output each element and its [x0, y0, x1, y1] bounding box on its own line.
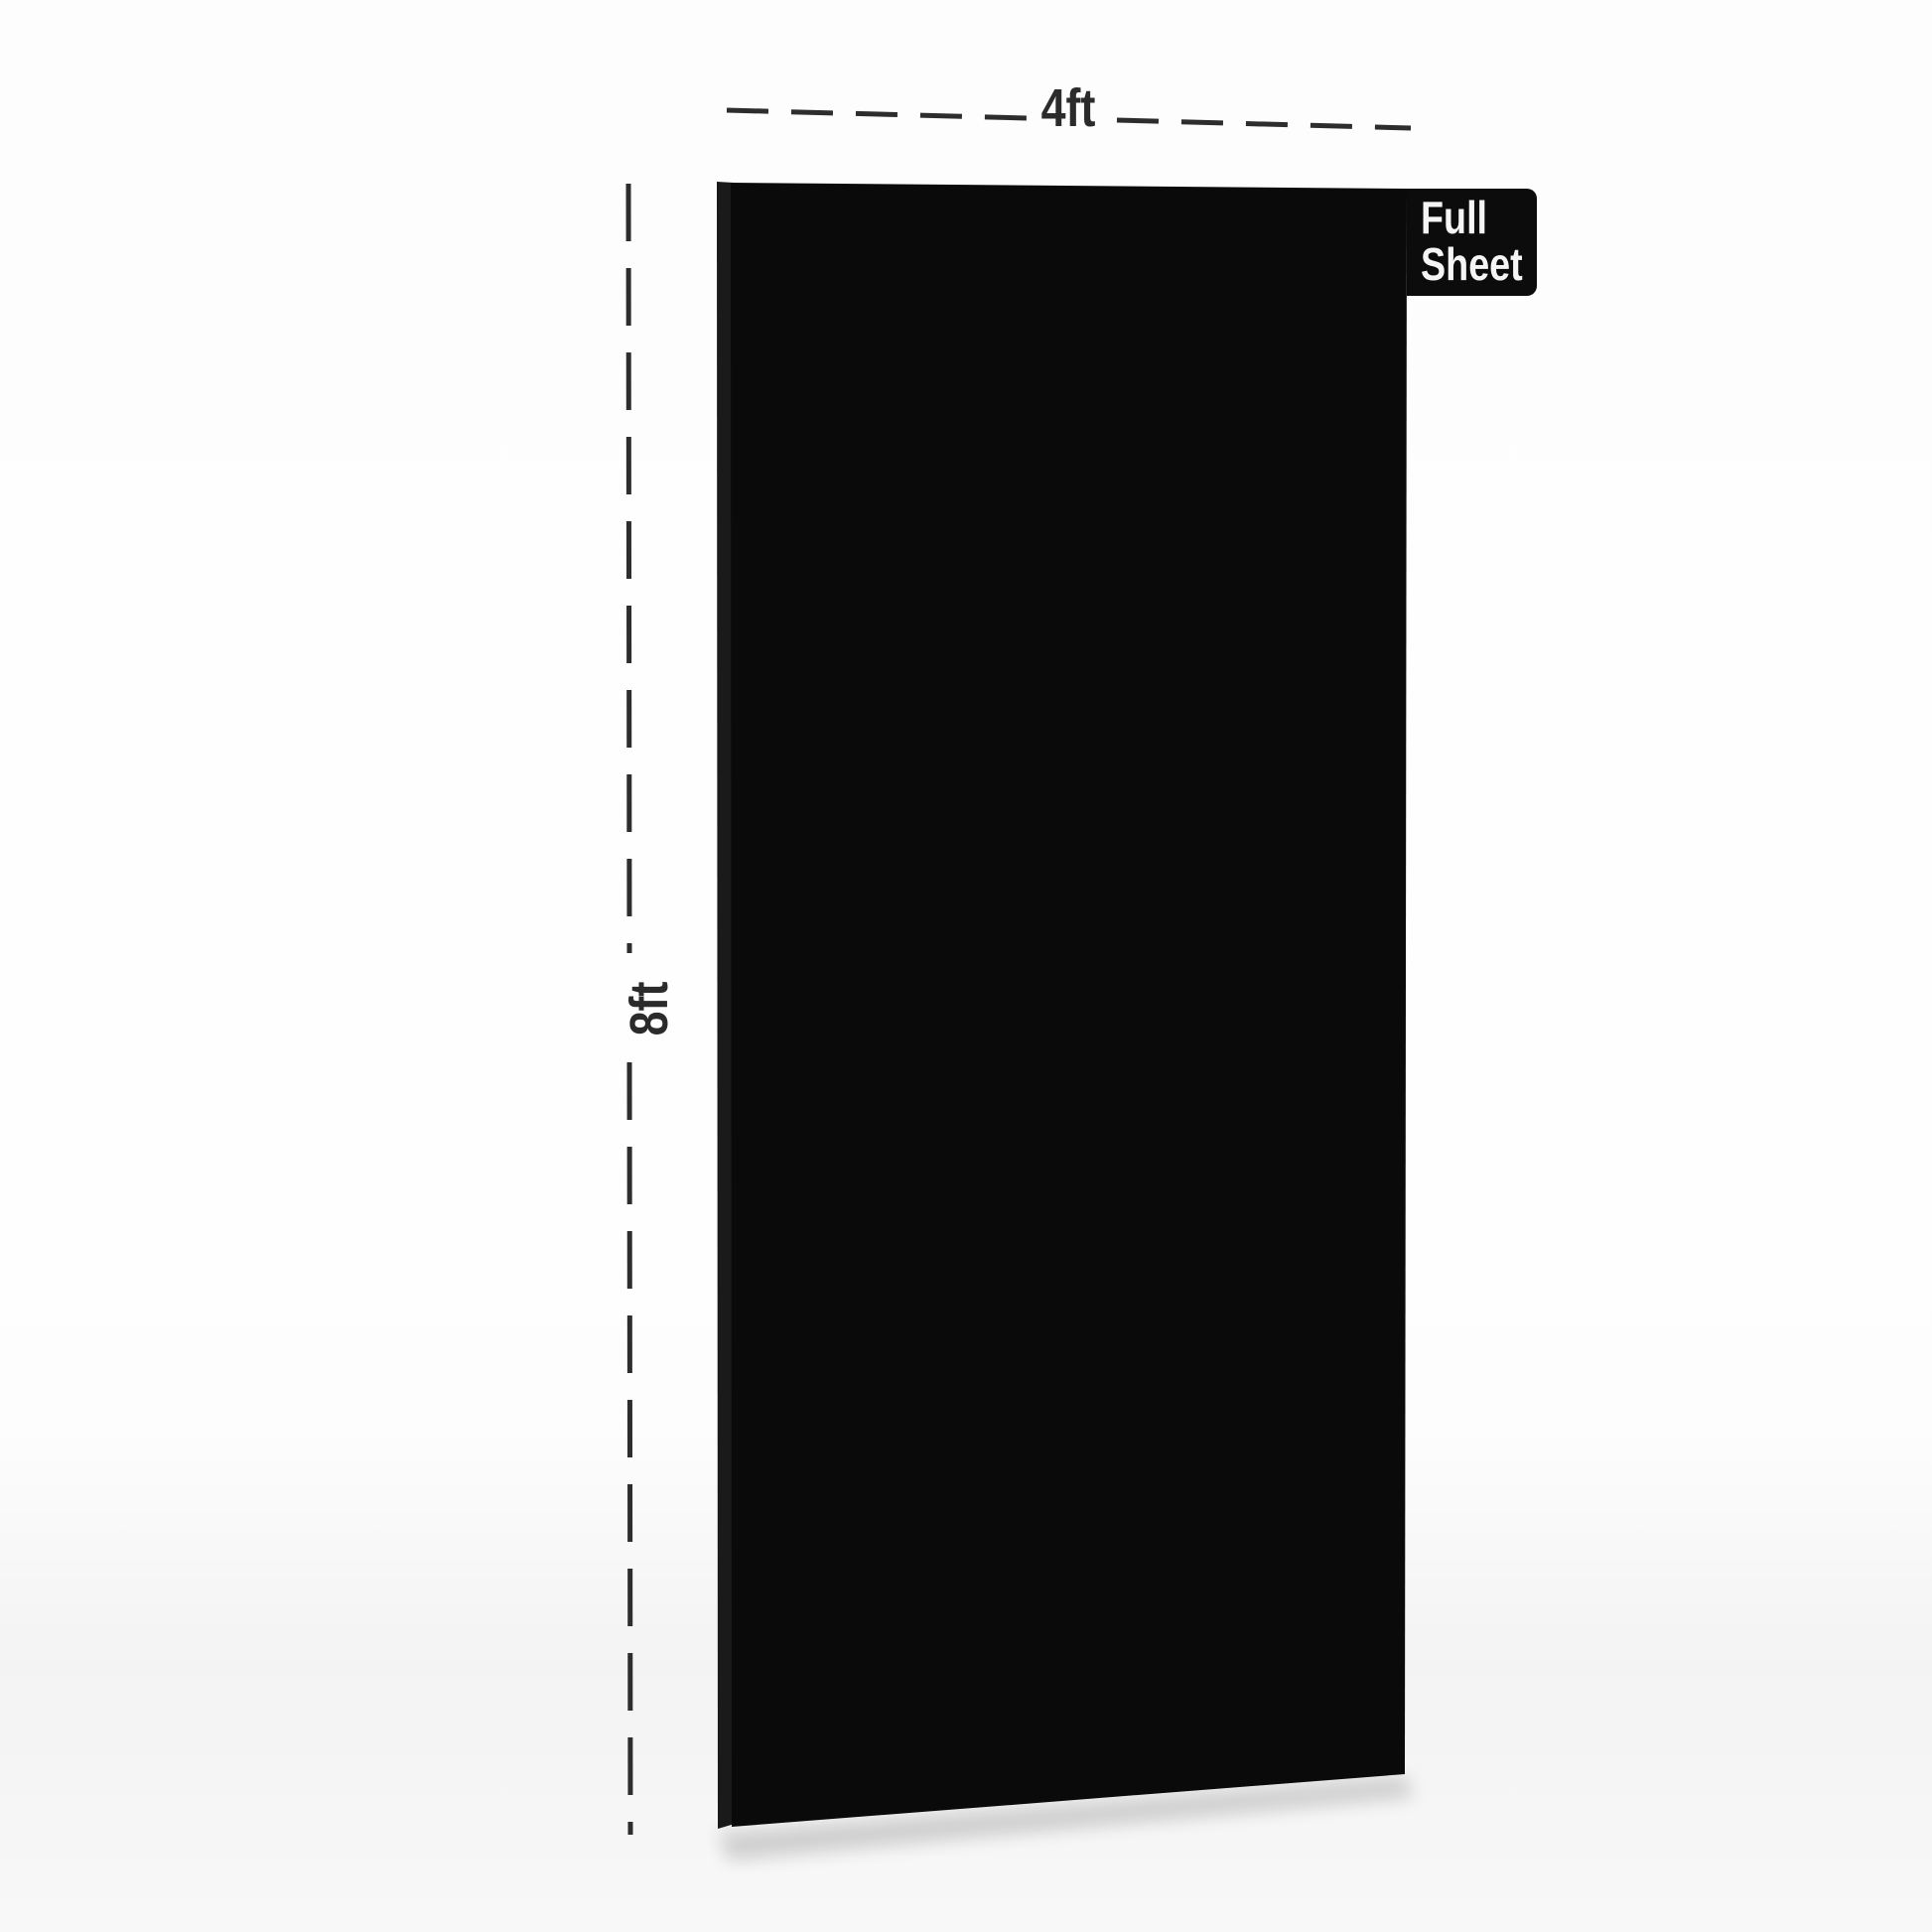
height-dimension-label: 8ft: [619, 982, 680, 1036]
height-dimension-line-bottom: [629, 1062, 630, 1835]
sheet-scene: [0, 0, 1932, 1932]
product-dimension-diagram: 4ft 8ft Full Sheet: [0, 0, 1932, 1932]
full-sheet-badge-line1: Full: [1421, 195, 1516, 241]
width-dimension-label: 4ft: [1041, 77, 1096, 139]
width-dimension-line-left: [727, 110, 1028, 118]
height-dimension-line-top: [628, 184, 629, 953]
width-dimension-line-right: [1117, 120, 1411, 128]
laminate-sheet-face: [731, 183, 1407, 1827]
full-sheet-badge-line2: Sheet: [1421, 241, 1516, 288]
full-sheet-badge: Full Sheet: [1407, 189, 1537, 296]
